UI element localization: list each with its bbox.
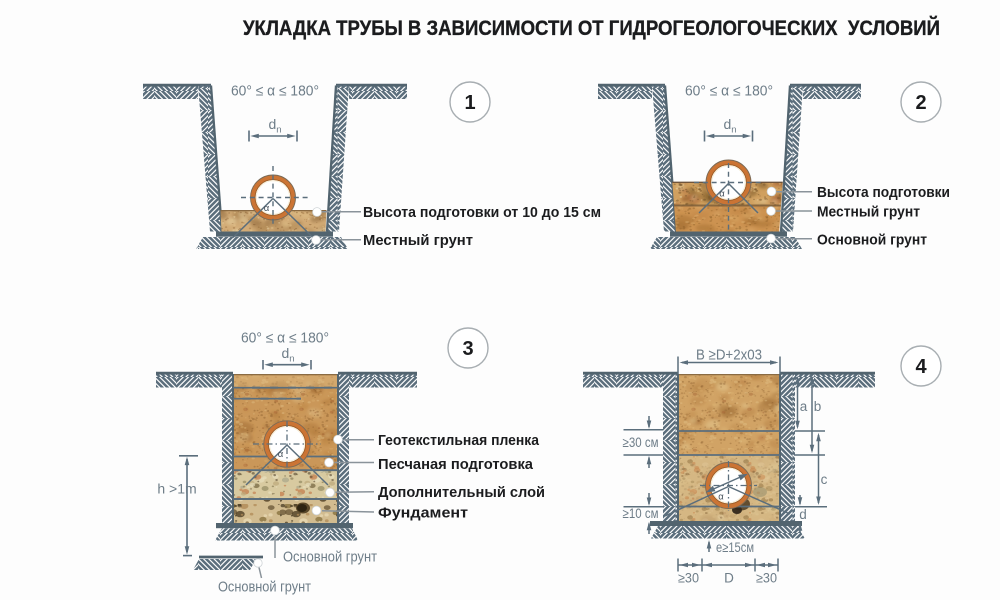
svg-text:a: a: [800, 399, 808, 414]
svg-text:Песчаная подготовка: Песчаная подготовка: [378, 456, 534, 473]
svg-text:α: α: [718, 492, 724, 503]
svg-text:e≥15см: e≥15см: [716, 540, 754, 555]
svg-text:≥10 см: ≥10 см: [623, 506, 659, 521]
svg-text:4: 4: [915, 356, 927, 378]
svg-text:Основной грунт: Основной грунт: [218, 580, 311, 596]
svg-text:2: 2: [915, 92, 926, 114]
svg-text:α: α: [264, 203, 270, 214]
svg-text:d: d: [799, 507, 807, 522]
svg-text:≥30 см: ≥30 см: [623, 435, 659, 450]
svg-text:Дополнительный слой: Дополнительный слой: [378, 484, 545, 501]
svg-text:Фундамент: Фундамент: [378, 505, 468, 522]
svg-text:Местный грунт: Местный грунт: [363, 232, 473, 249]
svg-text:Основной грунт: Основной грунт: [283, 550, 377, 566]
svg-text:Геотекстильная пленка: Геотекстильная пленка: [378, 432, 540, 449]
svg-text:D: D: [724, 571, 734, 586]
svg-text:1: 1: [464, 92, 475, 114]
svg-text:Высота подготовки: Высота подготовки: [817, 184, 950, 201]
svg-text:b: b: [814, 399, 822, 414]
svg-text:Высота подготовки от 10 до 15: Высота подготовки от 10 до 15 см: [363, 204, 601, 221]
svg-text:h >1m: h >1m: [157, 481, 196, 497]
svg-text:α: α: [719, 189, 725, 200]
svg-text:60° ≤ α ≤ 180°: 60° ≤ α ≤ 180°: [241, 331, 329, 347]
svg-text:УКЛАДКА ТРУБЫ В ЗАВИСИМОСТИ ОТ: УКЛАДКА ТРУБЫ В ЗАВИСИМОСТИ ОТ ГИДРОГЕОЛ…: [243, 16, 940, 40]
svg-text:Основной грунт: Основной грунт: [817, 231, 927, 248]
svg-text:≥30: ≥30: [678, 571, 699, 586]
svg-text:≥30: ≥30: [756, 571, 777, 586]
svg-text:α: α: [278, 449, 284, 460]
svg-text:c: c: [821, 472, 828, 487]
svg-text:3: 3: [462, 338, 473, 360]
svg-text:Местный грунт: Местный грунт: [817, 203, 920, 220]
svg-text:60° ≤ α ≤ 180°: 60° ≤ α ≤ 180°: [685, 84, 773, 100]
svg-text:B ≥D+2x03: B ≥D+2x03: [696, 347, 762, 364]
svg-text:60° ≤ α ≤ 180°: 60° ≤ α ≤ 180°: [231, 84, 319, 100]
